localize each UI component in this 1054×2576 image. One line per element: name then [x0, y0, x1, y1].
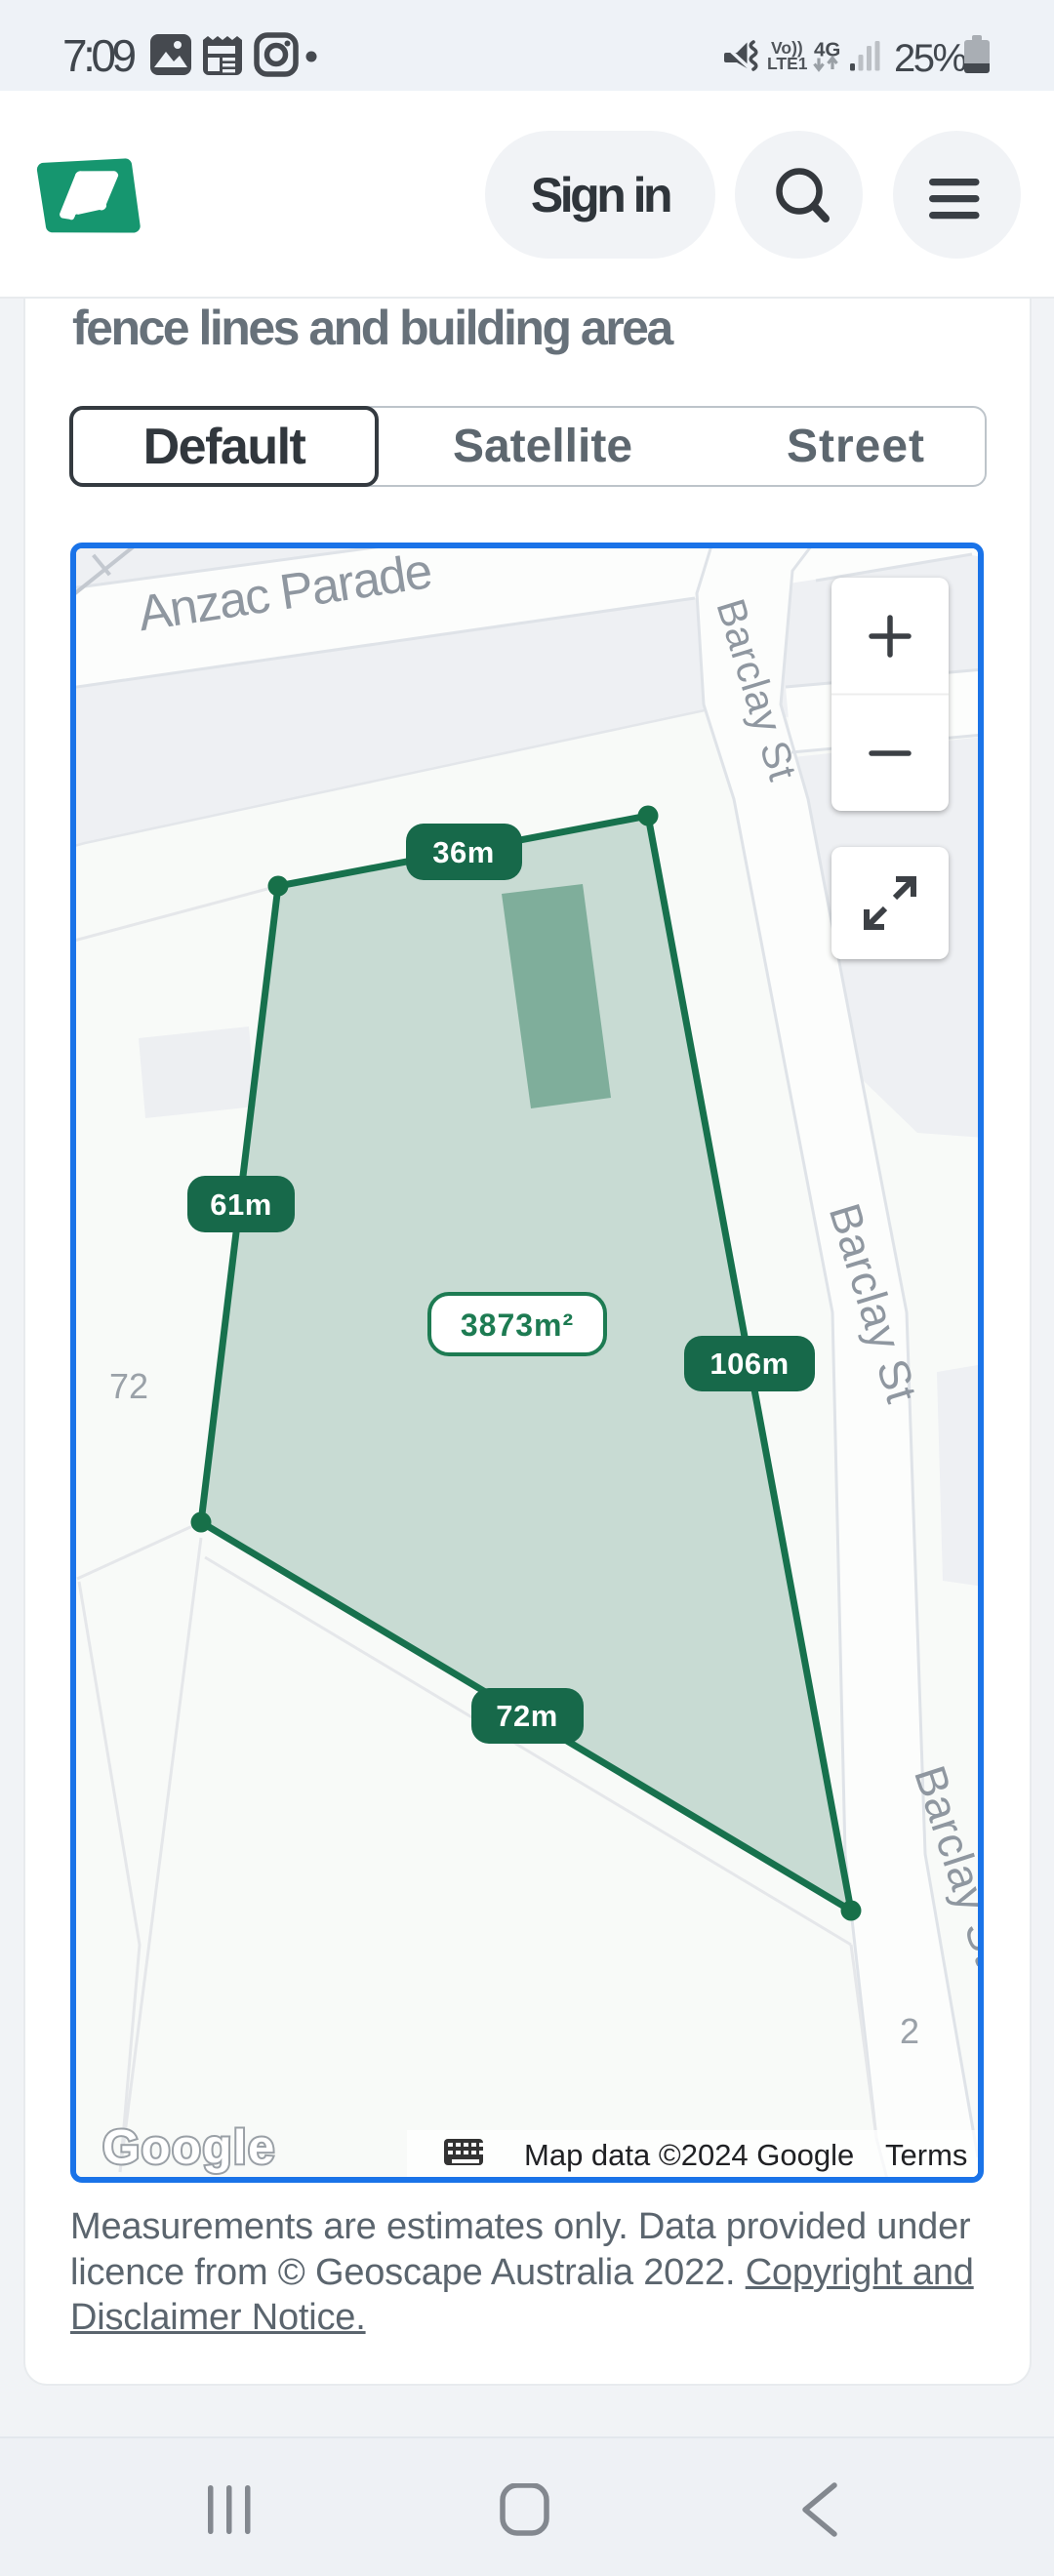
svg-text:36m: 36m	[432, 835, 495, 869]
svg-text:2: 2	[900, 2011, 919, 2051]
svg-text:3873m²: 3873m²	[461, 1308, 574, 1343]
svg-text:LTE1: LTE1	[767, 54, 808, 73]
svg-text:4G: 4G	[814, 39, 840, 61]
svg-text:Google: Google	[102, 2121, 276, 2174]
svg-text:25%: 25%	[894, 37, 966, 80]
svg-text:Map data ©2024 Google: Map data ©2024 Google	[524, 2138, 854, 2172]
svg-text:72: 72	[109, 1366, 148, 1406]
svg-text:106m: 106m	[709, 1347, 789, 1381]
svg-text:72m: 72m	[496, 1699, 558, 1733]
svg-text:Terms: Terms	[885, 2138, 967, 2172]
svg-text:61m: 61m	[210, 1187, 272, 1222]
